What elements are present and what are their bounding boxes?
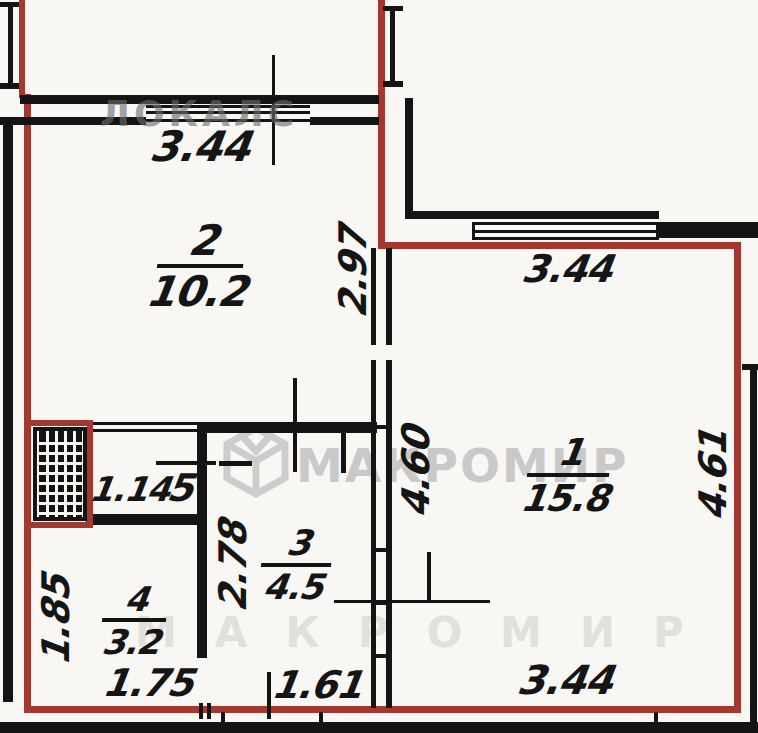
- room4-room3-wall: [197, 525, 207, 658]
- watermark-bottom-text: МАКРОМИР: [135, 608, 758, 657]
- bottom-tick-2: [207, 703, 211, 719]
- contour-left-wall: [24, 94, 31, 713]
- contour-entry-top-wall: [378, 0, 385, 248]
- hall-room1-wall-tick-4: [371, 654, 392, 658]
- hall-wall-tick: [341, 433, 346, 473]
- bottom-exterior-line: [0, 722, 758, 733]
- room2-hall-wall-thin-2: [86, 429, 207, 432]
- dim-room4-depth: 1.85: [37, 572, 73, 667]
- bottom-tick-4: [221, 712, 225, 723]
- room2-hall-wall-thin-1: [86, 422, 207, 425]
- top-interior-wall-right: [310, 117, 379, 125]
- hall-room1-wall-right-upper: [386, 248, 392, 345]
- right-extension-cap: [742, 364, 758, 370]
- bottom-tick-5: [319, 712, 323, 723]
- dim-room4-width: 1.75: [95, 664, 200, 702]
- room1-label: 1 15.8: [516, 434, 620, 517]
- hall-room1-wall-tick-2: [371, 548, 392, 552]
- room1-area: 15.8: [516, 480, 613, 517]
- balcony-rail-left-stem: [8, 4, 13, 86]
- room3-number: 3: [259, 526, 340, 561]
- contour-bottom-wall: [24, 706, 741, 713]
- left-neighbor-wall: [3, 125, 13, 702]
- room5-number-overline: [156, 461, 216, 465]
- room4-label: 4 3.2: [95, 582, 174, 659]
- room5-area-label: 1.14: [88, 472, 165, 506]
- neighbor-window-mid-line: [472, 230, 659, 233]
- room1-level-tick: [427, 552, 431, 602]
- neighbor-step-wall-horizontal: [405, 211, 659, 219]
- dim-room1-depth: 4.61: [694, 427, 730, 522]
- balcony-rail-left-cap-top: [0, 2, 19, 7]
- balcony-rail-mid-cap-bottom: [383, 81, 403, 87]
- room4-number: 4: [101, 582, 174, 616]
- balcony-rail-mid-stem: [390, 10, 395, 84]
- dim-room2-depth: 2.97: [334, 224, 370, 319]
- room1-level-line: [334, 600, 490, 603]
- right-extension-line: [750, 364, 757, 733]
- neighbor-right-wall: [657, 222, 758, 238]
- bottom-tick-6: [654, 712, 658, 723]
- floor-plan: 2 10.2 1 15.8 3 4.5 4 3.2 1.14 5 3.44 2.…: [0, 0, 758, 733]
- room5-bottom-wall: [86, 514, 207, 525]
- room1-number: 1: [523, 434, 620, 471]
- room2-number: 2: [151, 220, 257, 262]
- room2-hall-wall-thick: [205, 422, 377, 433]
- neighbor-step-wall-vertical: [405, 98, 413, 216]
- dim-room1-bottom-width: 3.44: [502, 660, 628, 700]
- room2-area: 10.2: [143, 271, 249, 313]
- contour-right-wall: [734, 242, 741, 713]
- dim-room1-top-width: 3.44: [509, 250, 624, 288]
- contour-balcony-left-wall: [19, 0, 25, 98]
- bottom-tick-1: [199, 703, 203, 719]
- room2-label: 2 10.2: [143, 220, 256, 313]
- shaft-hatch-grid: [33, 427, 87, 521]
- dim-hall-depth: 4.60: [397, 424, 433, 519]
- room3-label: 3 4.5: [252, 526, 339, 605]
- hall-door-leaf-line: [219, 461, 252, 466]
- room3-area: 4.5: [252, 570, 333, 605]
- room4-area: 3.2: [95, 625, 168, 659]
- room5-number-label: 5: [157, 469, 202, 507]
- dim-room3-width: 1.61: [269, 666, 364, 704]
- balcony-rail-left-cap-bottom: [0, 83, 19, 89]
- hall-extension-line: [293, 378, 297, 472]
- balcony-rail-mid-cap-top: [383, 6, 403, 11]
- watermark-top-text: ЛОКАЛС: [100, 93, 298, 134]
- dim-room3-depth: 2.78: [214, 518, 250, 613]
